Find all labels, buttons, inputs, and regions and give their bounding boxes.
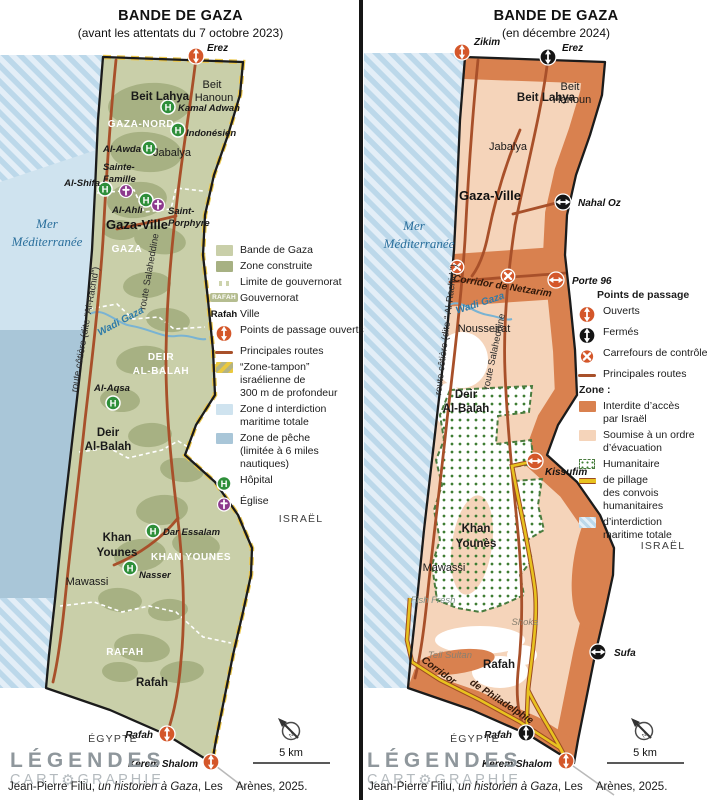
legend-swatch: [215, 325, 233, 342]
legend-swatch: [216, 261, 233, 272]
closed-crossing-icon: [540, 49, 556, 65]
legend-label: Zone construite: [240, 260, 312, 273]
legend-header: Zone :: [579, 384, 707, 396]
hospital-icon: H: [146, 524, 160, 538]
open-crossing-icon: [454, 44, 470, 60]
legend-key: [214, 346, 234, 354]
map-label-erez: Erez: [562, 43, 583, 54]
svg-text:H: H: [165, 102, 172, 113]
map-title-right: BANDE DE GAZA (en décembre 2024): [386, 8, 722, 40]
svg-text:H: H: [127, 563, 134, 574]
church-icon: [218, 498, 231, 511]
open-crossing-icon: [188, 48, 204, 64]
legend-label: Limite de gouvernorat: [240, 276, 342, 289]
legend-swatch: [579, 459, 595, 469]
legend-item-zone-construite: Zone construite: [214, 260, 364, 273]
open-crossing-icon: [558, 753, 574, 769]
map-label-jabalya: Jabalya: [153, 147, 192, 159]
credit-book-title: un historien à Gaza: [458, 781, 558, 793]
legend-label: Principales routes: [240, 345, 323, 358]
closed-crossing-icon: [518, 725, 534, 741]
gaza-maps-infographic: NHHHHHHHHBeit LahyaBeitHanounJabalyaGaza…: [0, 0, 722, 800]
hospital-icon: H: [123, 561, 137, 575]
map-label-beit-lahya: Beit Lahya: [131, 91, 190, 103]
open-crossing-icon: [159, 726, 175, 742]
map-label-youn-s: Younès: [456, 538, 497, 550]
credit-author: Jean-Pierre Filiu,: [368, 781, 458, 793]
map-label-rafah: Rafah: [483, 659, 515, 671]
map-label-al-balah: AL-BALAH: [133, 366, 189, 377]
legend-item-soumise-un-ordre: Soumise à un ordre d’évacuation: [577, 429, 707, 455]
church-icon: [152, 199, 165, 212]
open-crossing-icon: [579, 307, 595, 323]
map-label-al-aqsa: Al-Aqsa: [93, 383, 130, 394]
legend-swatch: [578, 348, 596, 365]
north-arrow: N: [278, 718, 300, 740]
legend-key: [214, 362, 234, 373]
credit-publisher: , Les: [198, 781, 223, 793]
page-title: BANDE DE GAZA: [0, 8, 361, 24]
north-arrow: N: [631, 718, 653, 740]
svg-text:H: H: [143, 195, 150, 206]
legend-label: Humanitaire: [603, 458, 660, 471]
legend-item-ferm-s: Fermés: [577, 326, 707, 344]
legend-label: Carrefours de contrôle: [603, 347, 707, 360]
map-label-deir: Deir: [97, 427, 120, 439]
legend-swatch: [578, 306, 596, 323]
legend-right: Points de passageOuvertsFermésCarrefours…: [577, 289, 707, 545]
legend-label: de pillage des convois humanitaires: [603, 474, 663, 513]
legend-swatch: [578, 327, 596, 344]
page-subtitle: (en décembre 2024): [386, 26, 722, 40]
map-label-mer: Mer: [402, 218, 426, 233]
map-label-hanoun: Hanoun: [553, 94, 592, 106]
legend-label: Zone d interdiction maritime totale: [240, 403, 326, 429]
legend-item-zone-de-p-che: Zone de pêche (limitée à 6 miles nautiqu…: [214, 432, 364, 471]
legend-key: [577, 369, 597, 377]
logo-line1: LÉGENDES: [10, 750, 166, 771]
map-label-tell-sultan: Tell Sultan: [428, 650, 472, 661]
legend-label: Bande de Gaza: [240, 244, 313, 257]
legend-key: [577, 517, 597, 528]
legend-swatch: [216, 433, 233, 444]
svg-text:H: H: [146, 143, 153, 154]
map-label-mawassi: Mawassi: [66, 576, 109, 588]
map-title-left: BANDE DE GAZA (avant les attentats du 7 …: [0, 8, 361, 40]
legend-swatch: [578, 374, 596, 377]
legend-item-d-interdiction: d’interdiction maritime totale: [577, 516, 707, 542]
map-label-nahal-oz: Nahal Oz: [578, 198, 621, 209]
closed-crossing-icon: [579, 328, 595, 344]
map-label-khan: Khan: [103, 532, 132, 544]
open-crossing-icon: [216, 326, 232, 342]
hospital-icon: H: [217, 477, 231, 491]
map-label-deir: DEIR: [148, 352, 174, 363]
map-label-khan-younes: KHAN YOUNES: [151, 552, 231, 563]
legend-swatch: [216, 404, 233, 415]
legend-item-ouverts: Ouverts: [577, 305, 707, 323]
legend-label: Soumise à un ordre d’évacuation: [603, 429, 695, 455]
map-label-fish-fresh: Fish Fresh: [411, 595, 456, 606]
map-label-famille: Famille: [103, 174, 136, 185]
legend-item-glise: Église: [214, 495, 364, 513]
legend-swatch: [216, 245, 233, 256]
map-label-5-km: 5 km: [279, 747, 303, 759]
legend-label: Zone de pêche (limitée à 6 miles nautiqu…: [240, 432, 319, 471]
map-label-khan: Khan: [462, 523, 491, 535]
svg-text:H: H: [221, 479, 228, 490]
church-icon: [120, 185, 133, 198]
map-label-rafah: RAFAH: [106, 647, 143, 658]
legend-key: [577, 475, 597, 484]
map-label-gaza-nord: GAZA-NORD: [108, 119, 175, 130]
credit-book-title: un historien à Gaza: [98, 781, 198, 793]
map-label-porte-96: Porte 96: [572, 276, 612, 287]
open-crossing-icon: [548, 272, 564, 288]
map-label-saint: Saint-: [168, 206, 194, 217]
map-label-al-awda: Al-Awda: [102, 144, 141, 155]
map-label-sainte: Sainte-: [103, 162, 135, 173]
credit-publisher: , Les: [558, 781, 583, 793]
map-label-gypte: ÉGYPTE: [88, 732, 138, 745]
legend-key: Rafah: [214, 309, 234, 320]
legend-label: Interdite d’accès par Israël: [603, 400, 679, 426]
legend-swatch: H: [215, 475, 233, 492]
legend-key: [577, 348, 597, 365]
map-label-nasser: Nasser: [139, 570, 172, 581]
legend-key: [214, 433, 234, 444]
map-label-dar-essalam: Dar Essalam: [163, 527, 221, 538]
legend-key: [577, 306, 597, 323]
map-label-m-diterran-e: Méditerranée: [383, 236, 455, 251]
legend-swatch: [579, 517, 596, 528]
legend-key: RAFAH: [214, 293, 234, 302]
map-label-younes: Younes: [97, 547, 138, 559]
map-label-rafah: Rafah: [136, 677, 168, 689]
map-label-al-ahli: Al-Ahli: [111, 205, 143, 216]
legend-swatch: [215, 496, 233, 513]
open-crossing-icon: [527, 453, 543, 469]
legend-key: [577, 327, 597, 344]
map-label-shoka: Shoka: [512, 617, 539, 628]
legend-item-interdite-d-acc-s: Interdite d’accès par Israël: [577, 400, 707, 426]
legend-swatch: Rafah: [211, 309, 237, 320]
legend-key: [214, 245, 234, 256]
map-label-indon-sien: Indonésien: [186, 128, 236, 139]
credit-author: Jean-Pierre Filiu,: [8, 781, 98, 793]
credit-year: Arènes, 2025.: [236, 781, 308, 793]
page-title: BANDE DE GAZA: [386, 8, 722, 24]
legend-label: Église: [240, 495, 269, 508]
legend-item-h-pital: HHôpital: [214, 474, 364, 492]
legend-key: [577, 430, 597, 441]
map-label-mer: Mer: [35, 216, 59, 231]
legend-key: [214, 261, 234, 272]
legend-item-de-pillage: de pillage des convois humanitaires: [577, 474, 707, 513]
legend-item-points-de-passage-ouverts: Points de passage ouverts: [214, 324, 364, 342]
legend-item-gouvernorat: RAFAHGouvernorat: [214, 292, 364, 305]
closed-crossing-icon: [555, 194, 571, 210]
map-label-kamal-adwan: Kamal Adwan: [178, 103, 240, 114]
map-label-5-km: 5 km: [633, 747, 657, 759]
map-label-porphyre: Porphyre: [168, 218, 210, 229]
legend-label: Ville: [240, 308, 260, 321]
legend-key: [214, 277, 234, 286]
map-label-m-diterran-e: Méditerranée: [11, 234, 83, 249]
map-label-gaza-ville: Gaza-Ville: [106, 217, 168, 232]
legend-label: Principales routes: [603, 368, 686, 381]
legend-label: Ouverts: [603, 305, 640, 318]
legend-key: [214, 325, 234, 342]
open-crossing-icon: [203, 754, 219, 770]
closed-crossing-icon: [590, 644, 606, 660]
legend-label: Gouvernorat: [240, 292, 298, 305]
legend-label: d’interdiction maritime totale: [603, 516, 672, 542]
legend-swatch: [579, 478, 596, 484]
legend-swatch: [579, 401, 596, 412]
legend-key: H: [214, 475, 234, 492]
legend-swatch: [215, 351, 233, 354]
legend-swatch: [579, 430, 596, 441]
map-label-beit: Beit: [203, 79, 222, 91]
svg-text:H: H: [102, 184, 109, 195]
legend-label: Points de passage ouverts: [240, 324, 364, 337]
logo-line1: LÉGENDES: [367, 750, 523, 771]
legend-item-principales-routes: Principales routes: [577, 368, 707, 381]
map-label-deir: Deir: [455, 389, 478, 401]
map-label-beit: Beit: [561, 81, 580, 93]
map-label-al-balah: Al-Balah: [443, 403, 490, 415]
map-label-erez: Erez: [207, 43, 228, 54]
legend-key: [214, 496, 234, 513]
legend-label: Fermés: [603, 326, 639, 339]
page-subtitle: (avant les attentats du 7 octobre 2023): [0, 26, 361, 40]
svg-text:H: H: [175, 125, 182, 136]
svg-text:H: H: [150, 526, 157, 537]
map-label-gypte: ÉGYPTE: [450, 732, 500, 745]
legend-key: [214, 404, 234, 415]
legend-item-principales-routes: Principales routes: [214, 345, 364, 358]
legend-item-zone-d-interdiction: Zone d interdiction maritime totale: [214, 403, 364, 429]
credit-right: Jean-Pierre Filiu, un historien à Gaza, …: [368, 781, 667, 793]
legend-swatch: [216, 362, 233, 373]
legend-label: Hôpital: [240, 474, 273, 487]
hospital-icon: H: [106, 396, 120, 410]
legend-key: [577, 401, 597, 412]
legend-item-carrefours-de-contr-le: Carrefours de contrôle: [577, 347, 707, 365]
legend-item-limite-de-gouvernorat: Limite de gouvernorat: [214, 276, 364, 289]
map-label-gaza: GAZA: [112, 244, 143, 255]
legend-label: “Zone-tampon” israélienne de 300 m de pr…: [240, 361, 337, 400]
legend-item-humanitaire: Humanitaire: [577, 458, 707, 471]
map-label-mawassi: Mawassi: [423, 562, 466, 574]
svg-text:H: H: [110, 398, 117, 409]
legend-item-bande-de-gaza: Bande de Gaza: [214, 244, 364, 257]
credit-left: Jean-Pierre Filiu, un historien à Gaza, …: [8, 781, 307, 793]
credit-year: Arènes, 2025.: [596, 781, 668, 793]
map-label-al-shifa: Al-Shifa: [63, 178, 100, 189]
map-label-jabalya: Jabalya: [489, 141, 528, 153]
map-label-sufa: Sufa: [614, 648, 636, 659]
legend-key: [577, 459, 597, 469]
checkpoint-icon: [580, 350, 594, 364]
legend-left: Bande de GazaZone construiteLimite de go…: [214, 244, 364, 516]
map-label-gaza-ville: Gaza-Ville: [459, 188, 521, 203]
legend-item-zone-tampon: “Zone-tampon” israélienne de 300 m de pr…: [214, 361, 364, 400]
legend-header: Points de passage: [597, 289, 707, 301]
map-label-al-balah: Al-Balah: [85, 441, 132, 453]
legend-swatch: [215, 281, 233, 286]
legend-swatch: RAFAH: [210, 293, 238, 302]
legend-item-ville: RafahVille: [214, 308, 364, 321]
